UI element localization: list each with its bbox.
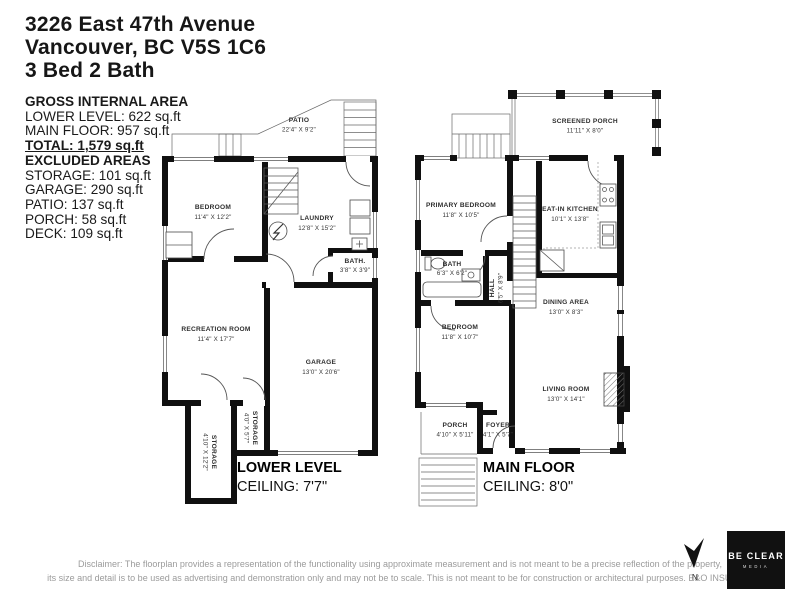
main-stairs	[513, 196, 536, 308]
main-floor-plan: SCREENED PORCH 11'11" X 8'0" PRIMARY BED…	[398, 85, 690, 515]
laundry-machines	[350, 200, 370, 250]
svg-text:13'0" X 14'1": 13'0" X 14'1"	[547, 396, 585, 403]
svg-text:SCREENED PORCH: SCREENED PORCH	[552, 118, 618, 125]
svg-text:6'3" X 6'2": 6'3" X 6'2"	[437, 270, 467, 277]
svg-text:STORAGE: STORAGE	[251, 411, 258, 446]
lower-level-plan: PATIO 22'4" X 9'2" BEDROOM 11'4" X 12'2"…	[145, 93, 390, 508]
beds-baths: 3 Bed 2 Bath	[25, 59, 266, 82]
svg-text:11'11" X 8'0": 11'11" X 8'0"	[567, 128, 604, 135]
svg-text:BEDROOM: BEDROOM	[195, 204, 231, 211]
svg-text:11'4" X 12'2": 11'4" X 12'2"	[194, 214, 231, 221]
svg-text:13'0" X 8'3": 13'0" X 8'3"	[549, 309, 583, 316]
address-line1: 3226 East 47th Avenue	[25, 13, 266, 36]
beclear-logo: BE CLEAR MEDIA	[727, 531, 785, 589]
address-line2: Vancouver, BC V5S 1C6	[25, 36, 266, 59]
electrical-panel-icon	[269, 222, 287, 240]
main-windows	[415, 155, 624, 454]
svg-text:4'10" X 5'11": 4'10" X 5'11"	[436, 432, 473, 439]
svg-text:BATH: BATH	[443, 261, 462, 268]
room-label-primary-bedroom: PRIMARY BEDROOM 11'8" X 10'5"	[426, 202, 496, 219]
svg-text:PRIMARY BEDROOM: PRIMARY BEDROOM	[426, 202, 496, 209]
svg-text:GARAGE: GARAGE	[306, 359, 337, 366]
bedroom-closet	[166, 232, 192, 258]
main-floor-title: MAIN FLOOR	[483, 460, 575, 476]
svg-text:4'10" X 12'2": 4'10" X 12'2"	[202, 433, 209, 471]
svg-text:11'8" X 10'5": 11'8" X 10'5"	[442, 212, 479, 219]
svg-text:STORAGE: STORAGE	[210, 435, 217, 470]
svg-text:4'0" X 5'7": 4'0" X 5'7"	[243, 413, 250, 443]
room-label-foyer: FOYER 4'1" X 5'7"	[483, 422, 513, 439]
svg-text:13'0" X 20'6": 13'0" X 20'6"	[302, 369, 340, 376]
room-label-eat-in-kitchen: EAT-IN KITCHEN 10'1" X 13'8"	[542, 206, 598, 223]
svg-text:4'1" X 5'7": 4'1" X 5'7"	[483, 432, 513, 439]
north-arrow-icon: N	[672, 528, 718, 586]
north-label: N	[692, 572, 698, 582]
patio-outline	[172, 100, 376, 156]
svg-text:PORCH: PORCH	[442, 422, 467, 429]
svg-text:DINING AREA: DINING AREA	[543, 299, 589, 306]
svg-text:BEDROOM: BEDROOM	[442, 324, 478, 331]
svg-text:RECREATION ROOM: RECREATION ROOM	[181, 326, 250, 333]
room-label-living: LIVING ROOM 13'0" X 14'1"	[542, 386, 589, 403]
svg-text:HALL: HALL	[489, 279, 496, 298]
lower-level-title: LOWER LEVEL	[237, 460, 342, 476]
svg-text:3'8" X 3'9": 3'8" X 3'9"	[340, 267, 370, 274]
room-label-laundry: LAUNDRY 12'8" X 15'2"	[298, 215, 336, 232]
svg-text:12'8" X 15'2": 12'8" X 15'2"	[298, 225, 336, 232]
logo-line2: MEDIA	[743, 564, 769, 569]
svg-text:LIVING ROOM: LIVING ROOM	[542, 386, 589, 393]
floorplan-page: 3226 East 47th Avenue Vancouver, BC V5S …	[0, 0, 800, 600]
room-label-bedroom: BEDROOM 11'4" X 12'2"	[194, 204, 231, 221]
fireplace-icon	[604, 373, 624, 406]
svg-text:11'4" X 17'7": 11'4" X 17'7"	[197, 336, 234, 343]
room-label-dining: DINING AREA 13'0" X 8'3"	[543, 299, 589, 316]
patio-dims: 22'4" X 9'2"	[282, 127, 316, 134]
svg-text:10'1" X 13'8": 10'1" X 13'8"	[551, 216, 589, 223]
lower-level-ceiling: CEILING: 7'7"	[237, 479, 327, 495]
address-header: 3226 East 47th Avenue Vancouver, BC V5S …	[25, 13, 266, 82]
room-label-storage-small: STORAGE 4'0" X 5'7"	[243, 411, 259, 446]
lower-stairs	[264, 168, 298, 214]
svg-text:LAUNDRY: LAUNDRY	[300, 215, 334, 222]
lower-doors	[201, 162, 370, 400]
svg-text:EAT-IN KITCHEN: EAT-IN KITCHEN	[542, 206, 598, 213]
svg-text:FOYER: FOYER	[486, 422, 510, 429]
logo-line1: BE CLEAR	[728, 551, 784, 561]
main-floor-ceiling: CEILING: 8'0"	[483, 479, 573, 495]
room-label-recreation: RECREATION ROOM 11'4" X 17'7"	[181, 326, 250, 343]
svg-text:11'8" X 10'7": 11'8" X 10'7"	[441, 334, 478, 341]
room-label-bath: BATH. 3'8" X 3'9"	[340, 258, 370, 274]
deck-stairs	[452, 114, 510, 158]
room-label-storage-large: STORAGE 4'10" X 12'2"	[202, 433, 218, 471]
room-label-screened-porch: SCREENED PORCH 11'11" X 8'0"	[552, 118, 618, 135]
room-label-hall: HALL 6'5" X 8'9"	[489, 273, 505, 303]
room-label-bedroom-main: BEDROOM 11'8" X 10'7"	[441, 324, 478, 341]
room-label-porch: PORCH 4'10" X 5'11"	[436, 422, 473, 439]
patio-name: PATIO	[289, 117, 309, 124]
room-label-garage: GARAGE 13'0" X 20'6"	[302, 359, 340, 376]
svg-text:6'5" X 8'9": 6'5" X 8'9"	[498, 273, 505, 303]
svg-text:BATH.: BATH.	[345, 258, 366, 265]
room-label-patio: PATIO 22'4" X 9'2"	[282, 117, 316, 134]
